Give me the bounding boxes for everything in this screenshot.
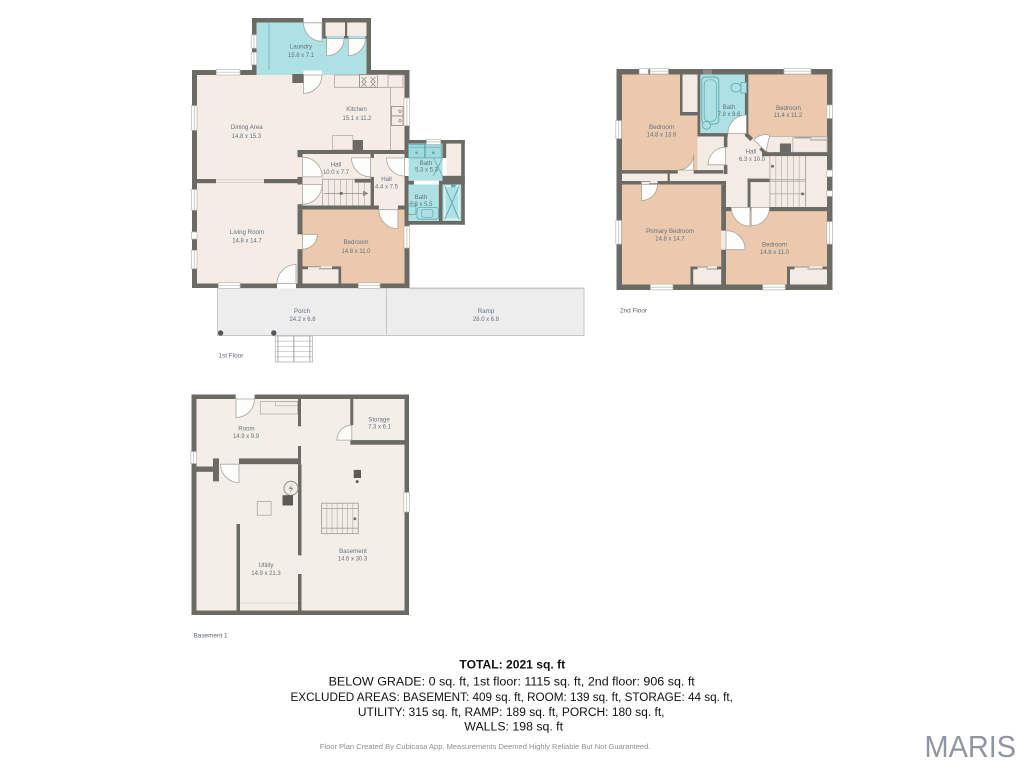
svg-text:2nd Floor: 2nd Floor [620, 308, 648, 315]
svg-text:Hall: Hall [331, 162, 342, 169]
svg-text:14.8 x 14.7: 14.8 x 14.7 [655, 237, 684, 243]
svg-text:Hall: Hall [746, 149, 757, 156]
svg-text:14.9 x 21.3: 14.9 x 21.3 [251, 571, 281, 577]
svg-text:4.4 x 7.5: 4.4 x 7.5 [375, 184, 398, 190]
svg-text:10.0 x 7.7: 10.0 x 7.7 [323, 170, 349, 176]
svg-text:Primary Bedroom: Primary Bedroom [646, 228, 694, 235]
svg-text:Ramp: Ramp [478, 308, 495, 315]
svg-text:24.2 x 6.8: 24.2 x 6.8 [289, 317, 316, 323]
svg-text:Bedroom: Bedroom [776, 105, 801, 112]
svg-text:Utility: Utility [258, 562, 274, 569]
svg-text:Bedroom: Bedroom [344, 239, 369, 246]
svg-text:EXCLUDED AREAS: BASEMENT: 409: EXCLUDED AREAS: BASEMENT: 409 sq. ft, RO… [291, 690, 733, 704]
svg-text:5.3 x 5.3: 5.3 x 5.3 [415, 167, 438, 173]
svg-text:11.4 x 11.2: 11.4 x 11.2 [774, 113, 803, 119]
svg-text:Bedroom: Bedroom [762, 242, 787, 249]
svg-text:TOTAL: 2021 sq. ft: TOTAL: 2021 sq. ft [459, 658, 565, 672]
svg-text:1st Floor: 1st Floor [219, 353, 245, 360]
svg-text:Kitchen: Kitchen [346, 106, 367, 113]
svg-text:Bath: Bath [420, 160, 433, 167]
svg-text:Porch: Porch [294, 308, 311, 315]
svg-text:Dining Area: Dining Area [231, 124, 263, 131]
svg-text:14.8 x 11.0: 14.8 x 11.0 [760, 250, 790, 256]
svg-text:Bath: Bath [415, 194, 428, 201]
svg-text:6.3 x 10.0: 6.3 x 10.0 [739, 157, 766, 163]
svg-text:14.9 x 9.9: 14.9 x 9.9 [233, 434, 260, 440]
svg-text:Floor Plan Created By Cubicasa: Floor Plan Created By Cubicasa App. Meas… [320, 744, 651, 751]
svg-text:BELOW GRADE: 0 sq. ft, 1st flo: BELOW GRADE: 0 sq. ft, 1st floor: 1115 s… [329, 674, 696, 688]
svg-text:Bath: Bath [723, 104, 736, 111]
svg-text:15.8 x 7.1: 15.8 x 7.1 [288, 53, 315, 59]
svg-text:MARIS: MARIS [925, 730, 1017, 764]
svg-text:14.8 x 13.9: 14.8 x 13.9 [647, 133, 677, 139]
svg-text:UTILITY: 315 sq. ft, RAMP: 189: UTILITY: 315 sq. ft, RAMP: 189 sq. ft, P… [358, 705, 665, 719]
svg-text:Living Room: Living Room [230, 229, 264, 236]
svg-text:WALLS: 198 sq. ft: WALLS: 198 sq. ft [464, 720, 563, 734]
svg-text:Storage: Storage [368, 417, 390, 424]
svg-text:7.9 x 5.5: 7.9 x 5.5 [410, 202, 433, 208]
svg-text:14.6 x 30.3: 14.6 x 30.3 [338, 556, 368, 562]
svg-text:Room: Room [238, 426, 254, 433]
svg-text:7.8 x 8.6: 7.8 x 8.6 [718, 112, 741, 118]
svg-text:28.0 x 6.8: 28.0 x 6.8 [473, 317, 500, 323]
svg-text:14.8 x 15.3: 14.8 x 15.3 [232, 134, 262, 140]
svg-text:Laundry: Laundry [290, 43, 313, 50]
svg-text:15.1 x 11.2: 15.1 x 11.2 [343, 116, 372, 122]
svg-text:Basement: Basement [339, 548, 367, 555]
svg-text:Bedroom: Bedroom [649, 124, 674, 131]
svg-text:14.8 x 11.0: 14.8 x 11.0 [342, 249, 372, 255]
svg-text:Basement 1: Basement 1 [194, 633, 229, 640]
svg-text:14.8 x 14.7: 14.8 x 14.7 [232, 239, 261, 245]
svg-text:7.3 x 6.1: 7.3 x 6.1 [368, 425, 391, 431]
svg-text:Hall: Hall [381, 176, 392, 183]
